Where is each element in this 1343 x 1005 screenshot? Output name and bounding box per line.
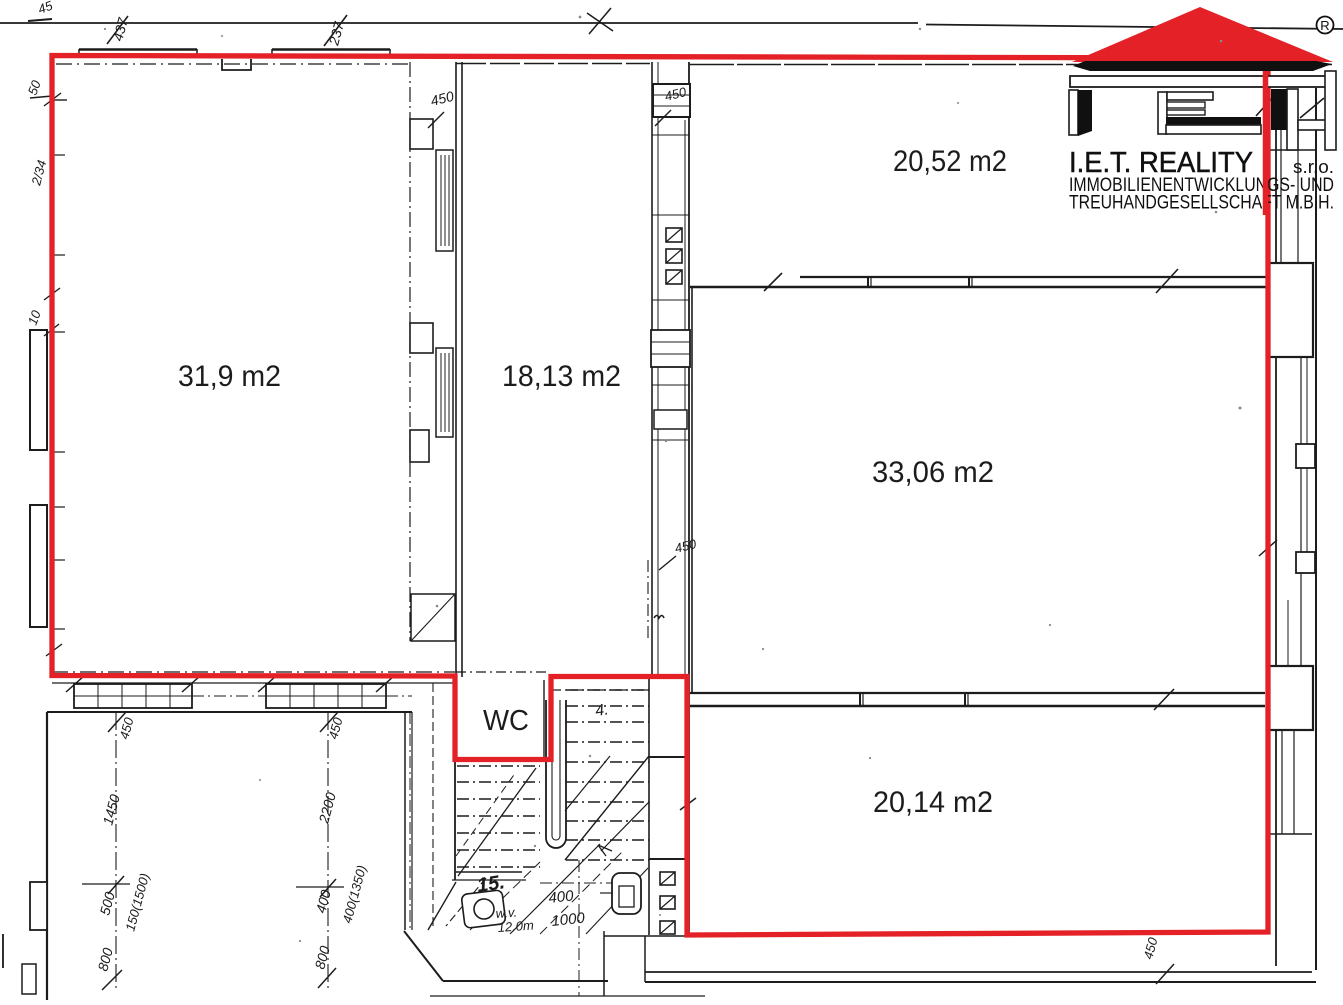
svg-text:31,9 m2: 31,9 m2 [178,360,281,393]
svg-text:12.0m: 12.0m [497,917,534,934]
svg-text:18,13 m2: 18,13 m2 [502,360,621,393]
svg-text:WC: WC [483,705,529,737]
svg-text:33,06 m2: 33,06 m2 [872,456,994,489]
svg-text:TREUHANDGESELLSCHAFT M.B.H.: TREUHANDGESELLSCHAFT M.B.H. [1069,192,1334,214]
svg-text:R: R [1320,18,1329,33]
svg-text:4.: 4. [594,701,610,720]
svg-text:20,14 m2: 20,14 m2 [873,786,993,819]
svg-text:15.: 15. [476,871,507,897]
svg-text:20,52 m2: 20,52 m2 [893,145,1007,178]
svg-text:400: 400 [548,887,575,907]
svg-text:1000: 1000 [551,910,587,930]
